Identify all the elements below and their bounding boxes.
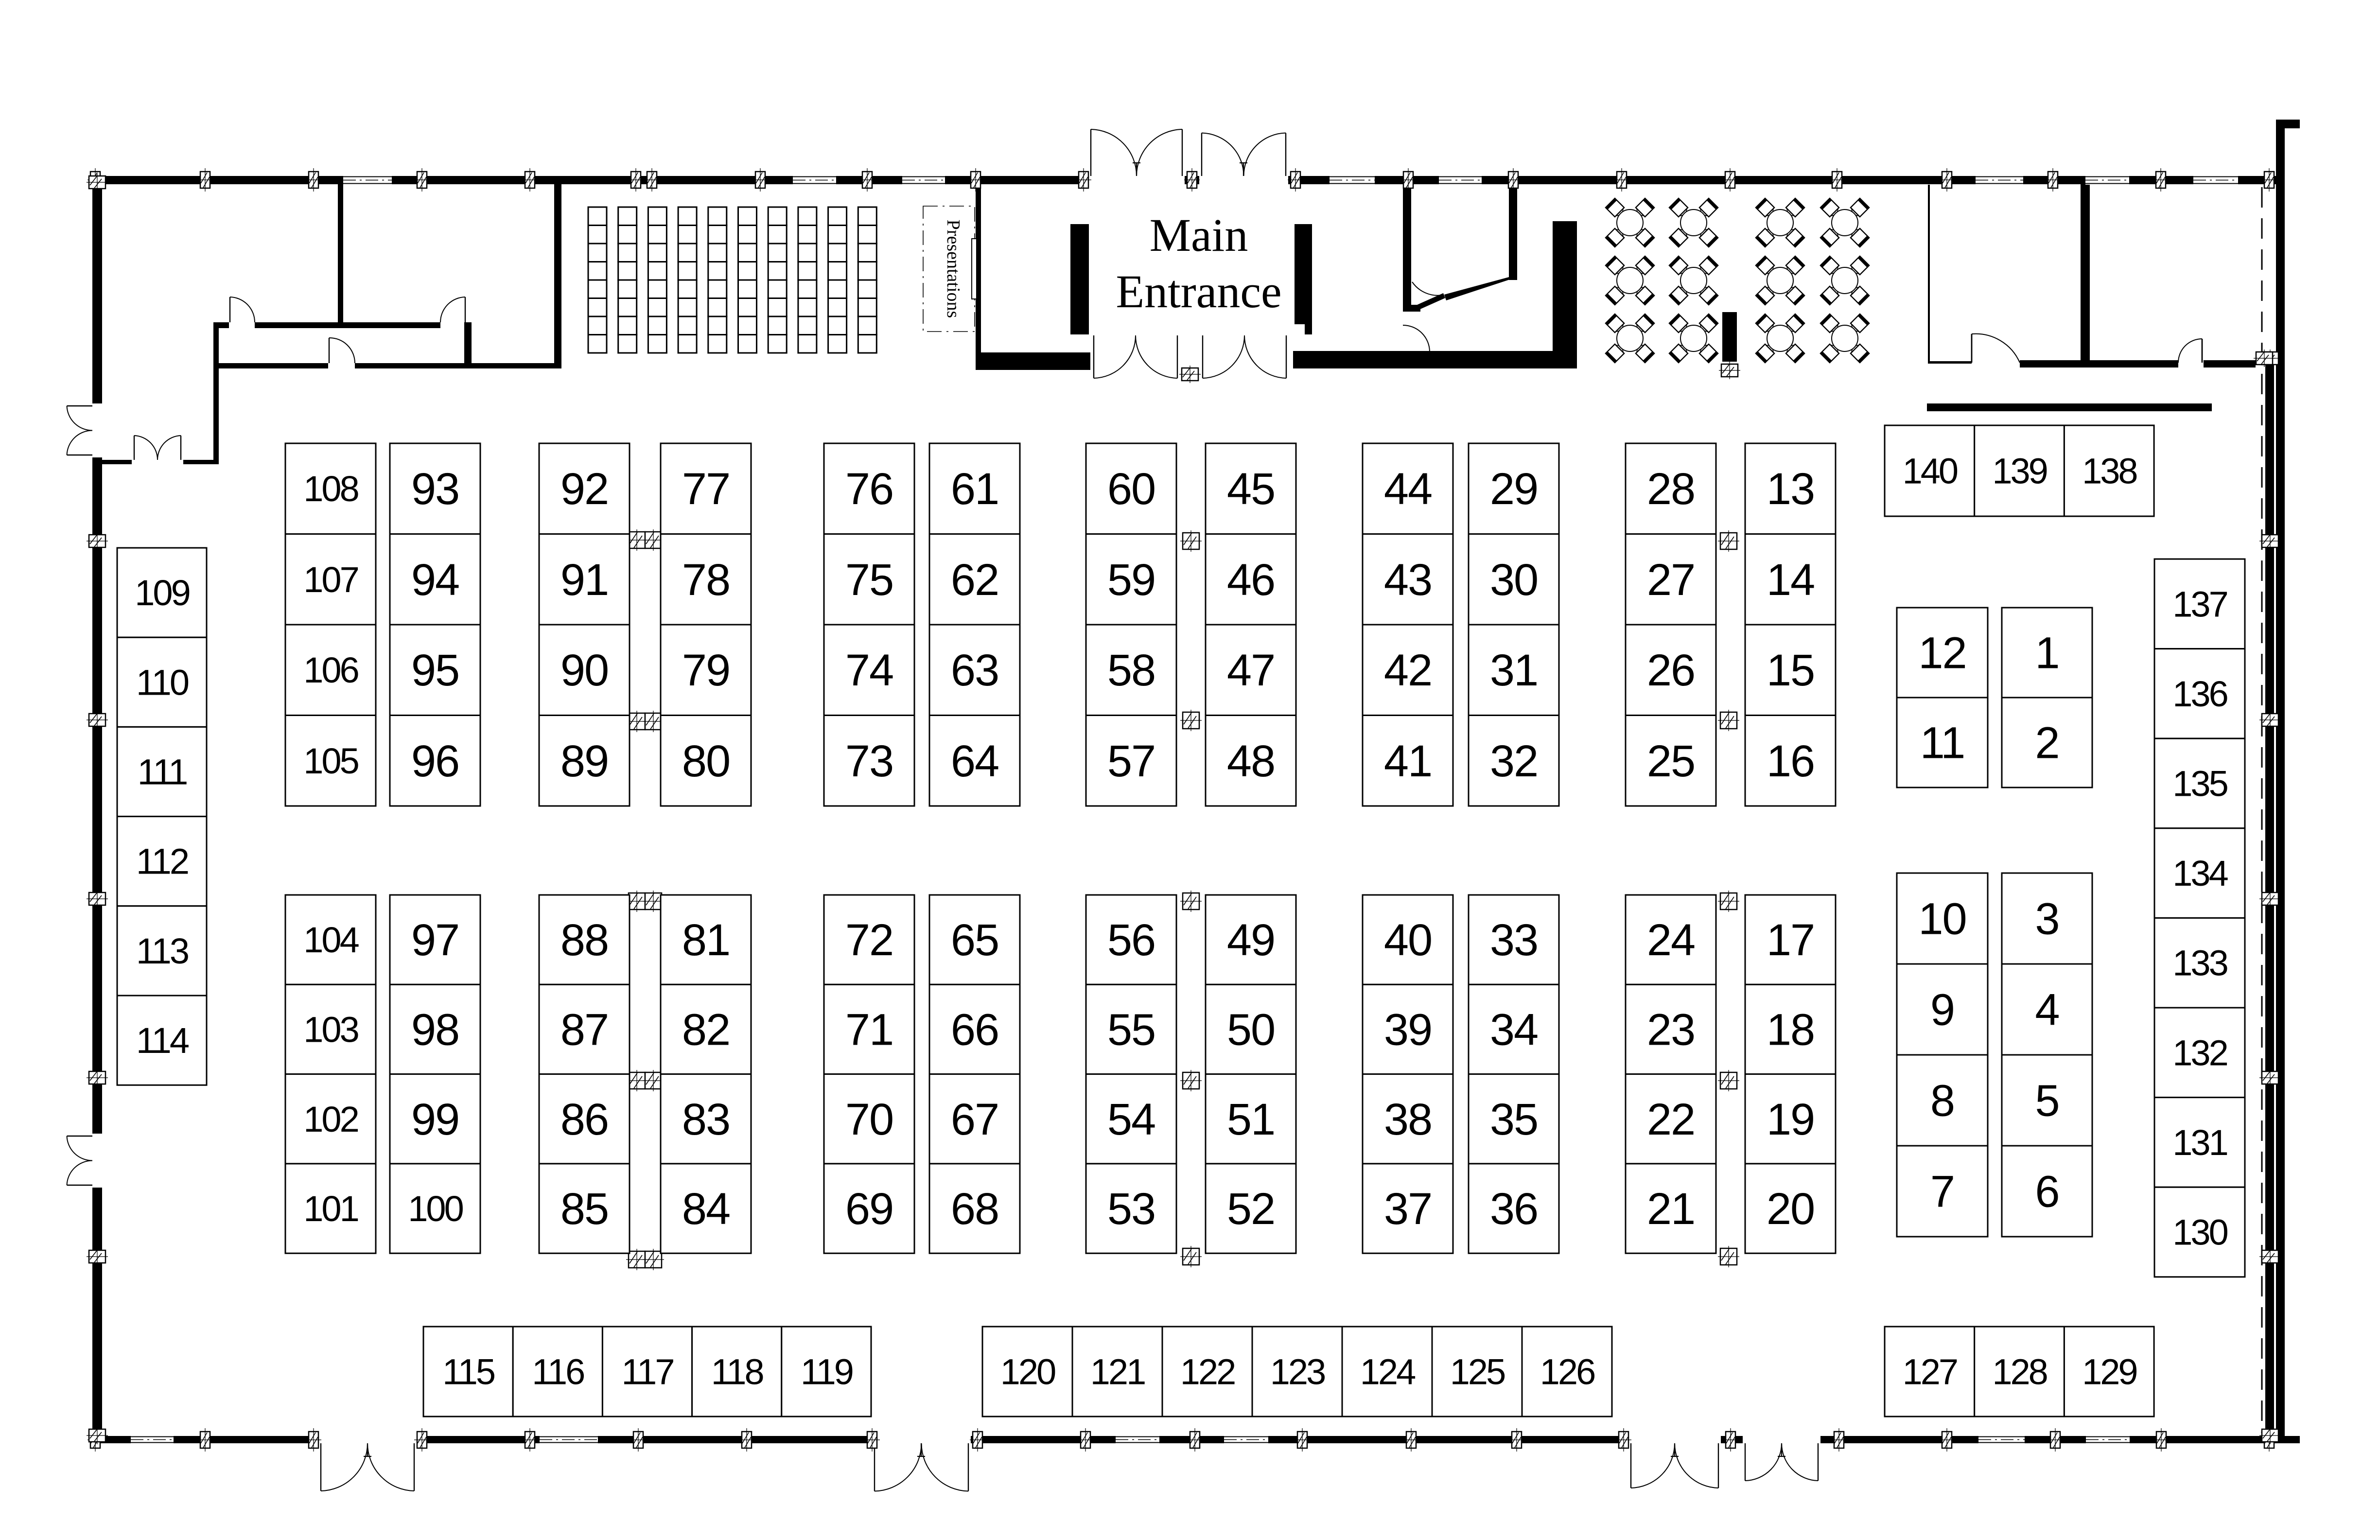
svg-text:17: 17	[1767, 915, 1814, 965]
svg-text:130: 130	[2172, 1212, 2227, 1253]
svg-text:40: 40	[1384, 915, 1432, 965]
svg-text:8: 8	[1930, 1076, 1954, 1126]
svg-text:61: 61	[951, 464, 998, 514]
svg-text:23: 23	[1647, 1005, 1695, 1054]
svg-text:36: 36	[1490, 1184, 1538, 1234]
svg-text:109: 109	[135, 573, 189, 613]
svg-text:38: 38	[1384, 1095, 1432, 1144]
svg-text:49: 49	[1227, 915, 1275, 965]
svg-text:18: 18	[1767, 1005, 1814, 1054]
svg-text:71: 71	[845, 1005, 893, 1054]
svg-text:118: 118	[711, 1352, 763, 1392]
svg-text:19: 19	[1767, 1095, 1814, 1144]
svg-text:16: 16	[1767, 736, 1814, 786]
svg-text:26: 26	[1647, 646, 1695, 695]
svg-text:111: 111	[138, 752, 187, 792]
svg-text:82: 82	[682, 1005, 730, 1054]
svg-text:83: 83	[682, 1095, 730, 1144]
svg-text:117: 117	[622, 1352, 674, 1392]
svg-text:44: 44	[1384, 464, 1432, 514]
svg-text:95: 95	[411, 646, 459, 695]
svg-text:67: 67	[951, 1095, 998, 1144]
svg-text:73: 73	[845, 736, 893, 786]
svg-text:22: 22	[1647, 1095, 1695, 1144]
svg-text:131: 131	[2172, 1122, 2227, 1163]
svg-text:65: 65	[951, 915, 998, 965]
svg-text:122: 122	[1180, 1352, 1235, 1392]
svg-text:53: 53	[1107, 1184, 1155, 1234]
svg-text:136: 136	[2172, 674, 2227, 714]
svg-text:87: 87	[560, 1005, 608, 1054]
svg-text:113: 113	[136, 931, 188, 971]
svg-text:2: 2	[2035, 718, 2059, 768]
svg-text:45: 45	[1227, 464, 1275, 514]
svg-text:120: 120	[1000, 1352, 1055, 1392]
svg-text:77: 77	[682, 464, 730, 514]
svg-text:119: 119	[801, 1352, 853, 1392]
svg-text:127: 127	[1903, 1352, 1957, 1392]
svg-text:133: 133	[2172, 943, 2227, 983]
svg-text:58: 58	[1107, 646, 1155, 695]
svg-text:52: 52	[1227, 1184, 1275, 1234]
svg-text:92: 92	[560, 464, 608, 514]
svg-text:Main: Main	[1150, 209, 1248, 261]
svg-text:68: 68	[951, 1184, 998, 1234]
svg-text:135: 135	[2172, 764, 2227, 804]
svg-text:35: 35	[1490, 1095, 1538, 1144]
svg-text:33: 33	[1490, 915, 1538, 965]
svg-text:88: 88	[560, 915, 608, 965]
svg-text:84: 84	[682, 1184, 730, 1234]
svg-text:74: 74	[845, 646, 893, 695]
svg-text:72: 72	[845, 915, 893, 965]
svg-text:126: 126	[1540, 1352, 1594, 1392]
svg-text:5: 5	[2035, 1076, 2059, 1126]
svg-text:94: 94	[411, 555, 459, 605]
svg-text:90: 90	[560, 646, 608, 695]
svg-text:108: 108	[303, 469, 358, 509]
svg-text:27: 27	[1647, 555, 1695, 605]
svg-text:112: 112	[136, 841, 188, 882]
svg-text:98: 98	[411, 1005, 459, 1054]
svg-text:101: 101	[303, 1189, 358, 1229]
svg-text:78: 78	[682, 555, 730, 605]
svg-text:10: 10	[1918, 894, 1966, 944]
svg-text:7: 7	[1930, 1167, 1954, 1217]
svg-text:139: 139	[1992, 451, 2047, 491]
svg-text:30: 30	[1490, 555, 1538, 605]
svg-text:69: 69	[845, 1184, 893, 1234]
svg-text:9: 9	[1930, 985, 1954, 1035]
svg-text:34: 34	[1490, 1005, 1538, 1054]
svg-text:25: 25	[1647, 736, 1695, 786]
svg-text:47: 47	[1227, 646, 1275, 695]
svg-text:75: 75	[845, 555, 893, 605]
svg-text:6: 6	[2035, 1167, 2059, 1217]
svg-text:14: 14	[1767, 555, 1814, 605]
svg-text:11: 11	[1920, 718, 1965, 768]
svg-text:93: 93	[411, 464, 459, 514]
svg-text:103: 103	[303, 1009, 358, 1050]
svg-text:129: 129	[2082, 1352, 2136, 1392]
svg-text:46: 46	[1227, 555, 1275, 605]
svg-text:96: 96	[411, 736, 459, 786]
svg-text:13: 13	[1767, 464, 1814, 514]
svg-text:20: 20	[1767, 1184, 1814, 1234]
svg-text:28: 28	[1647, 464, 1695, 514]
svg-text:134: 134	[2172, 853, 2227, 893]
svg-text:24: 24	[1647, 915, 1695, 965]
svg-text:110: 110	[136, 662, 189, 702]
svg-text:91: 91	[560, 555, 608, 605]
svg-text:86: 86	[560, 1095, 608, 1144]
svg-text:55: 55	[1107, 1005, 1155, 1054]
svg-text:81: 81	[682, 915, 730, 965]
svg-text:41: 41	[1384, 736, 1432, 786]
svg-text:56: 56	[1107, 915, 1155, 965]
svg-text:80: 80	[682, 736, 730, 786]
svg-text:70: 70	[845, 1095, 893, 1144]
svg-text:114: 114	[136, 1020, 189, 1061]
svg-text:115: 115	[442, 1352, 495, 1392]
svg-text:76: 76	[845, 464, 893, 514]
svg-text:85: 85	[560, 1184, 608, 1234]
svg-text:21: 21	[1647, 1184, 1695, 1234]
svg-text:140: 140	[1903, 451, 1958, 491]
svg-text:4: 4	[2035, 985, 2059, 1035]
svg-text:137: 137	[2172, 584, 2227, 624]
svg-text:125: 125	[1450, 1352, 1505, 1392]
svg-text:15: 15	[1767, 646, 1814, 695]
svg-text:1: 1	[2035, 629, 2059, 678]
svg-text:124: 124	[1360, 1352, 1415, 1392]
svg-text:63: 63	[951, 646, 998, 695]
svg-text:54: 54	[1107, 1095, 1155, 1144]
svg-text:31: 31	[1490, 646, 1538, 695]
svg-text:39: 39	[1384, 1005, 1432, 1054]
svg-text:123: 123	[1270, 1352, 1325, 1392]
svg-text:89: 89	[560, 736, 608, 786]
svg-text:51: 51	[1227, 1095, 1275, 1144]
svg-text:138: 138	[2082, 451, 2136, 491]
svg-text:60: 60	[1107, 464, 1155, 514]
svg-text:79: 79	[682, 646, 730, 695]
svg-text:107: 107	[303, 560, 358, 600]
svg-text:12: 12	[1918, 629, 1966, 678]
svg-text:57: 57	[1107, 736, 1155, 786]
svg-text:Presentations: Presentations	[943, 220, 963, 318]
svg-text:48: 48	[1227, 736, 1275, 786]
svg-text:100: 100	[408, 1189, 463, 1229]
svg-text:132: 132	[2172, 1032, 2227, 1073]
svg-text:62: 62	[951, 555, 998, 605]
svg-text:37: 37	[1384, 1184, 1432, 1234]
svg-text:64: 64	[951, 736, 998, 786]
svg-text:121: 121	[1090, 1352, 1145, 1392]
svg-text:97: 97	[411, 915, 459, 965]
svg-text:42: 42	[1384, 646, 1432, 695]
svg-text:29: 29	[1490, 464, 1538, 514]
svg-text:104: 104	[303, 920, 358, 960]
svg-text:43: 43	[1384, 555, 1432, 605]
svg-text:66: 66	[951, 1005, 998, 1054]
svg-text:99: 99	[411, 1095, 459, 1144]
svg-text:106: 106	[303, 650, 358, 690]
svg-text:3: 3	[2035, 894, 2059, 944]
svg-text:50: 50	[1227, 1005, 1275, 1054]
svg-text:Entrance: Entrance	[1116, 265, 1281, 317]
svg-text:116: 116	[532, 1352, 584, 1392]
svg-text:128: 128	[1992, 1352, 2047, 1392]
svg-text:32: 32	[1490, 736, 1538, 786]
svg-text:105: 105	[303, 741, 358, 781]
svg-text:59: 59	[1107, 555, 1155, 605]
svg-text:102: 102	[303, 1099, 358, 1139]
